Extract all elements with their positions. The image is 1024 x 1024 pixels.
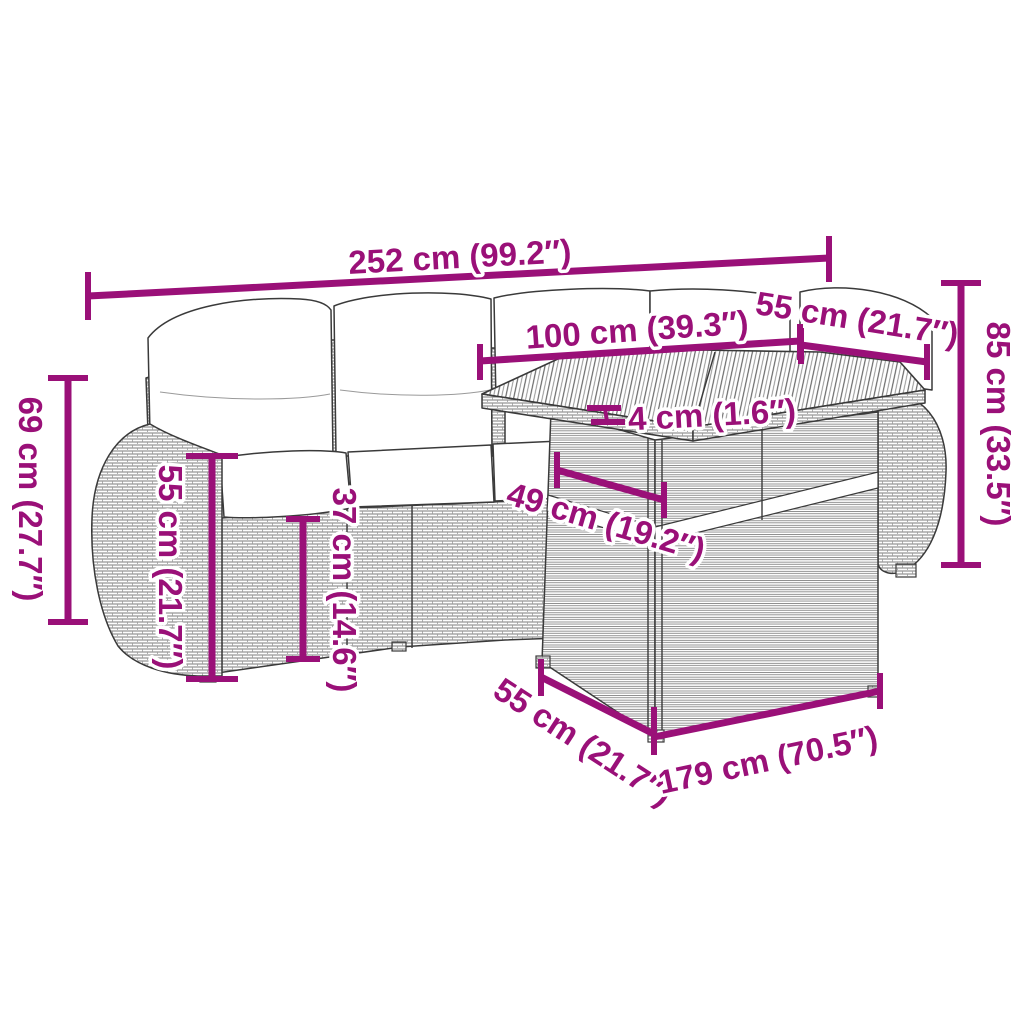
dimension-diagram: 252 cm (99.2″) 100 cm (39.3″) 55 cm (21.… [0,0,1024,1024]
table-front-right-face [655,412,878,737]
seat-cushion-2 [348,445,494,507]
dim-armrest-height: 69 cm (27.7″) [12,378,88,622]
diagram-canvas: 252 cm (99.2″) 100 cm (39.3″) 55 cm (21.… [0,0,1024,1024]
sofa-foot [392,642,406,651]
sofa-right-armrest [878,392,946,574]
dim-armrest-height-label: 69 cm (27.7″) [12,397,49,602]
sofa-base [196,497,560,676]
dim-seat-height-label: 37 cm (14.6″) [326,488,363,693]
armrest-foot [896,564,916,577]
back-cushion-2 [334,293,492,456]
dim-backrest-height-label: 55 cm (21.7″) [152,465,189,670]
dim-overall-height-label: 85 cm (33.5″) [980,322,1017,527]
